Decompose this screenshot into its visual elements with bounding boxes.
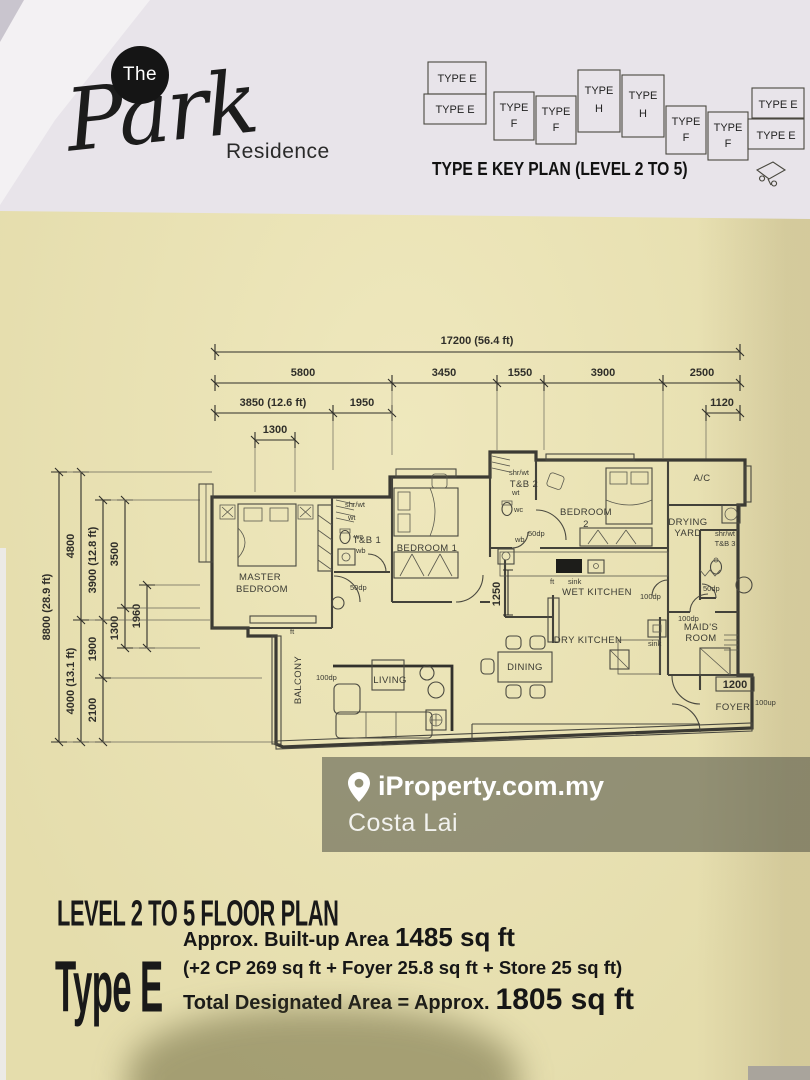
key-plan-unit-label: TYPE E	[435, 104, 474, 116]
dim-segment: 1120	[710, 397, 734, 409]
dim-segment: 1950	[350, 397, 374, 409]
dim-segment: 3450	[432, 367, 456, 379]
key-plan-unit-label: TYPE	[500, 102, 529, 114]
watermark-agent: Costa Lai	[348, 809, 810, 838]
dim-segment: 2500	[690, 367, 714, 379]
label-wet-kitchen: WET KITCHEN	[562, 587, 632, 598]
ann-wb: wb	[514, 535, 525, 544]
key-plan-unit-label: TYPE E	[758, 99, 797, 111]
key-plan-unit-label: H	[639, 108, 647, 120]
label-bedroom1: BEDROOM 1	[397, 543, 458, 554]
key-plan-unit-h1: TYPE H	[578, 70, 620, 132]
sofa-set	[334, 660, 446, 738]
wardrobe-bedroom1	[394, 552, 458, 578]
dim-segment: 3900	[591, 367, 615, 379]
key-plan-caption: TYPE E KEY PLAN (LEVEL 2 TO 5)	[432, 159, 708, 181]
label-dry-kitchen: DRY KITCHEN	[554, 635, 622, 646]
dim-foyer: 1200	[723, 679, 747, 691]
paper-edge-left	[0, 548, 6, 1080]
ann-ft: ft	[550, 577, 555, 586]
dim-segment: 1550	[508, 367, 532, 379]
wardrobe-bedroom2	[580, 528, 652, 546]
label-tb3: T&B 3	[715, 539, 736, 548]
dim-segment: 4000 (13.1 ft)	[65, 647, 77, 714]
ann-50dp: 50dp	[528, 529, 545, 538]
dim-segment: 2100	[87, 698, 99, 722]
top-dimension-lines: 17200 (56.4 ft) 5800 3450 1550 3900 2500…	[211, 335, 744, 492]
label-maids-room: MAID'S	[684, 622, 718, 633]
dim-segment: 1300	[109, 616, 121, 640]
label-bedroom2: BEDROOM	[560, 507, 612, 518]
table-surface-corner	[748, 1066, 810, 1080]
watermark-overlay: iProperty.com.my Costa Lai	[322, 757, 810, 852]
dim-segment: 3500	[109, 542, 121, 566]
label-ac: A/C	[693, 473, 710, 484]
dim-total-height: 8800 (28.9 ft)	[41, 573, 53, 640]
kitchen-fixtures	[500, 552, 668, 674]
label-tb3: shr/wt	[715, 529, 736, 538]
dim-segment: 5800	[291, 367, 315, 379]
key-plan-unit-label: TYPE	[672, 116, 701, 128]
total-area-value: 1805 sq ft	[496, 983, 634, 1017]
key-plan-unit-label: TYPE E	[756, 130, 795, 142]
ann-sink: sink	[568, 577, 582, 586]
key-plan-unit-label: F	[553, 122, 560, 134]
key-plan-unit-label: TYPE	[629, 90, 658, 102]
label-dining: DINING	[507, 662, 543, 673]
ann-shr-wt: shr/wt	[509, 468, 530, 477]
key-plan-unit-label: TYPE	[542, 106, 571, 118]
key-plan-unit-label: TYPE	[585, 85, 614, 97]
label-master-bedroom: BEDROOM	[236, 584, 288, 595]
label-bedroom2: 2	[583, 519, 589, 530]
ann-shr-wt: shr/wt	[345, 500, 366, 509]
ann-50dp: 50dp	[350, 583, 367, 592]
bed-master	[220, 504, 313, 566]
dim-segment: 1900	[87, 637, 99, 661]
key-plan-unit-label: F	[725, 138, 732, 150]
photographed-floorplan-page: Park The Residence TYPE E TYPE E	[0, 0, 810, 1080]
dim-hall: 1250	[491, 582, 503, 606]
side-table-icon	[220, 505, 235, 519]
key-plan-unit-label: F	[511, 118, 518, 130]
area-summary: Approx. Built-up Area1485 sq ft (+2 CP 2…	[183, 922, 634, 1017]
label-master-bedroom: MASTER	[239, 572, 281, 583]
key-plan-unit-f1: TYPE F	[494, 92, 534, 140]
ann-sink: sink	[648, 639, 662, 648]
ann-wb: wb	[355, 546, 366, 555]
ann-wt: wt	[511, 488, 520, 497]
sink-icon	[588, 560, 604, 573]
label-living: LIVING	[373, 675, 407, 686]
key-plan-unit-label: TYPE E	[437, 73, 476, 85]
ann-100dp: 100dp	[678, 614, 699, 623]
sink-icon	[648, 620, 666, 637]
dim-segment: 1960	[131, 604, 143, 628]
dim-segment: 4800	[65, 534, 77, 558]
label-drying-yard: YARD	[674, 528, 701, 539]
key-plan-caption-bold: TYPE E	[432, 159, 488, 180]
toilet-icon	[340, 529, 350, 544]
floor-plan-title: LEVEL 2 TO 5 FLOOR PLAN	[57, 893, 418, 925]
bed-bedroom1	[394, 474, 458, 536]
ann-wc: wc	[353, 532, 363, 541]
key-plan-unit-f3: TYPE F	[666, 106, 706, 154]
ann-100dp: 100dp	[316, 673, 337, 682]
label-drying-yard: DRYING	[668, 517, 707, 528]
ann-wc: wc	[513, 505, 523, 514]
key-plan-unit-f4: TYPE F	[708, 112, 748, 160]
key-plan-unit-h2: TYPE H	[622, 75, 664, 137]
key-plan-unit-label: H	[595, 103, 603, 115]
toilet-icon	[502, 501, 512, 516]
ann-wt: wt	[347, 513, 356, 522]
floorplan-walls	[199, 452, 754, 749]
north-arrow-icon	[757, 162, 785, 186]
washbasin-icon	[338, 549, 355, 565]
left-dimension-lines: 8800 (28.9 ft) 4800 4000 (13.1 ft) 3900 …	[41, 468, 278, 746]
key-plan-unit-label: TYPE	[714, 122, 743, 134]
label-foyer: FOYER	[716, 702, 751, 713]
dim-segment: 3900 (12.8 ft)	[87, 526, 99, 593]
type-label-text: Type E	[55, 944, 163, 1029]
watermark-brand: iProperty.com.my	[378, 771, 604, 802]
key-plan-unit-f2: TYPE F	[536, 96, 576, 144]
label-balcony: BALCONY	[293, 656, 304, 704]
key-plan-unit-e-left: TYPE E TYPE E	[424, 62, 486, 124]
ann-50dp: 50dp	[703, 584, 720, 593]
dim-segment: 3850 (12.6 ft)	[240, 397, 307, 409]
location-pin-icon	[348, 772, 370, 802]
ann-100dp: 100dp	[640, 592, 661, 601]
key-plan-unit-label: F	[683, 132, 690, 144]
key-plan-caption-rest: KEY PLAN (LEVEL 2 TO 5)	[488, 159, 688, 180]
dim-total-width: 17200 (56.4 ft)	[441, 335, 514, 347]
builtup-label: Approx. Built-up Area	[183, 929, 389, 952]
wardrobe-master	[318, 505, 332, 571]
floor-trap-icon	[426, 710, 446, 730]
builtup-value: 1485 sq ft	[395, 922, 515, 953]
stove-icon	[556, 559, 582, 573]
toilet-icon	[711, 558, 722, 574]
extras-line: (+2 CP 269 sq ft + Foyer 25.8 sq ft + St…	[183, 957, 634, 979]
key-plan-unit-e-right: TYPE E TYPE E	[748, 88, 804, 149]
dim-segment: 1300	[263, 424, 287, 436]
side-table-icon	[298, 505, 313, 519]
label-maids-room: ROOM	[685, 633, 716, 644]
ann-100up: 100up	[755, 698, 776, 707]
